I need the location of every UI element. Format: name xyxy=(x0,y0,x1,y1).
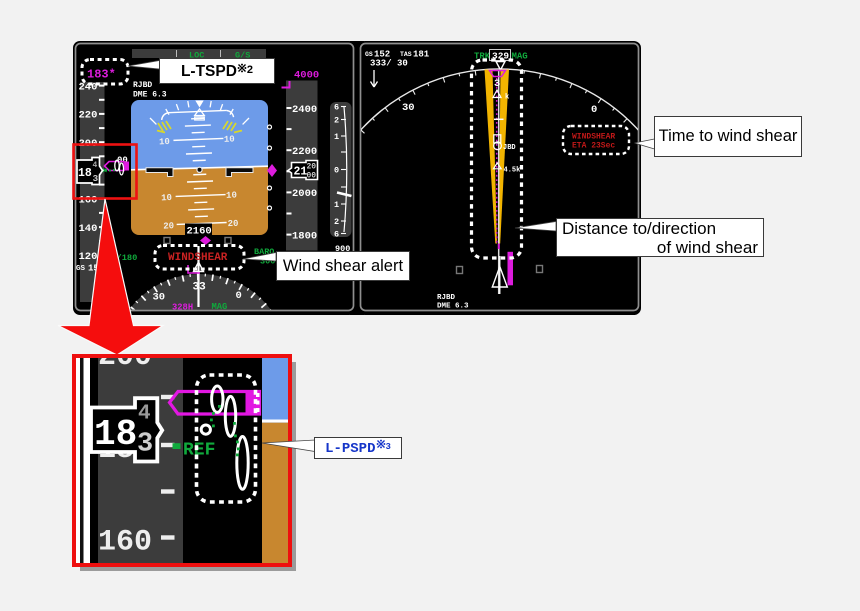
svg-text:k: k xyxy=(505,94,509,102)
svg-text:ETA 23Sec: ETA 23Sec xyxy=(572,142,615,151)
svg-text:2160: 2160 xyxy=(187,226,212,238)
svg-text:WINDSHEAR: WINDSHEAR xyxy=(572,133,615,142)
svg-text:DME 6.3: DME 6.3 xyxy=(133,91,167,100)
svg-text:RJBD: RJBD xyxy=(437,294,456,302)
svg-text:10: 10 xyxy=(159,137,170,147)
svg-text:TAS: TAS xyxy=(400,51,412,58)
svg-text:0: 0 xyxy=(334,166,339,176)
svg-text:MAG: MAG xyxy=(212,302,228,312)
svg-text:1: 1 xyxy=(334,132,339,142)
svg-text:6: 6 xyxy=(334,103,339,113)
svg-text:18: 18 xyxy=(94,414,137,455)
svg-text:333/ 30: 333/ 30 xyxy=(370,59,408,69)
svg-text:JBD: JBD xyxy=(503,144,516,152)
svg-text:160: 160 xyxy=(98,526,152,560)
svg-text:REF: REF xyxy=(183,441,215,461)
svg-text:2: 2 xyxy=(334,217,339,227)
svg-text:10: 10 xyxy=(224,134,235,144)
svg-text:6: 6 xyxy=(334,230,339,240)
svg-text:2: 2 xyxy=(334,116,339,126)
svg-text:2200: 2200 xyxy=(292,146,317,158)
svg-text:10: 10 xyxy=(161,193,172,203)
svg-text:140: 140 xyxy=(79,223,98,235)
svg-text:328H: 328H xyxy=(172,303,193,313)
svg-text:4: 4 xyxy=(93,161,98,170)
svg-text:220: 220 xyxy=(79,110,98,122)
svg-text:30: 30 xyxy=(402,102,415,114)
svg-text:18: 18 xyxy=(78,167,92,180)
svg-text:183*: 183* xyxy=(87,68,116,82)
svg-text:240: 240 xyxy=(79,81,98,93)
svg-text:MAG: MAG xyxy=(512,52,528,62)
svg-text:20: 20 xyxy=(307,163,317,172)
svg-text:1800: 1800 xyxy=(292,230,317,242)
svg-text:120: 120 xyxy=(79,251,98,263)
svg-text:4000: 4000 xyxy=(294,70,319,82)
svg-text:4.5k: 4.5k xyxy=(504,166,521,174)
svg-text:160: 160 xyxy=(79,195,98,207)
svg-text:0: 0 xyxy=(236,290,242,302)
svg-text:20: 20 xyxy=(228,219,239,229)
svg-text:1: 1 xyxy=(334,200,339,210)
svg-text:10: 10 xyxy=(226,190,237,200)
svg-text:3: 3 xyxy=(137,430,153,460)
svg-text:181: 181 xyxy=(413,50,430,60)
svg-text:3: 3 xyxy=(93,173,99,184)
svg-text:2400: 2400 xyxy=(292,104,317,116)
svg-text:00: 00 xyxy=(307,172,317,181)
svg-text:WINDSHEAR: WINDSHEAR xyxy=(168,252,228,264)
svg-text:GS: GS xyxy=(365,51,373,58)
svg-text:4: 4 xyxy=(138,403,151,426)
svg-text:21: 21 xyxy=(294,166,308,179)
svg-text:0: 0 xyxy=(591,104,597,116)
svg-text:30: 30 xyxy=(153,292,166,304)
svg-text:20: 20 xyxy=(163,221,174,231)
svg-text:DME 6.3: DME 6.3 xyxy=(437,303,469,311)
svg-text:GS: GS xyxy=(76,265,86,273)
svg-text:2000: 2000 xyxy=(292,188,317,200)
svg-text:3: 3 xyxy=(494,78,500,90)
svg-text:RJBD: RJBD xyxy=(133,81,152,90)
